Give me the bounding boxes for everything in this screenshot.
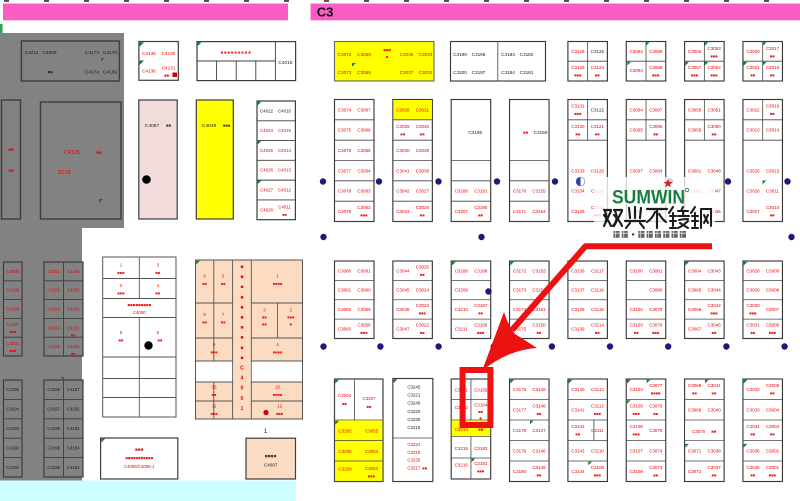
svg-text:C3208: C3208 (455, 268, 469, 273)
svg-text:■■: ■■ (712, 391, 717, 396)
svg-text:C3153: C3153 (532, 268, 546, 273)
svg-text:C3025: C3025 (416, 264, 430, 269)
svg-text:C3122: C3122 (591, 107, 605, 112)
svg-text:C3065: C3065 (688, 288, 702, 293)
svg-text:C3028: C3028 (746, 268, 760, 273)
svg-text:C3187: C3187 (474, 303, 488, 308)
svg-text:C4155: C4155 (47, 344, 60, 349)
svg-text:C3061: C3061 (357, 268, 371, 273)
svg-text:C3040: C3040 (707, 407, 721, 412)
svg-text:C4013: C4013 (278, 168, 291, 173)
svg-text:C3047: C3047 (396, 326, 410, 331)
svg-text:C3078: C3078 (649, 323, 663, 328)
svg-text:C3196: C3196 (472, 52, 486, 57)
svg-text:4: 4 (241, 376, 244, 382)
svg-text:C3081: C3081 (338, 288, 352, 293)
svg-text:C3080: C3080 (649, 288, 663, 293)
svg-text:C3036: C3036 (400, 52, 414, 57)
svg-text:C3029: C3029 (746, 288, 760, 293)
svg-text:■■■: ■■■ (710, 73, 718, 78)
svg-text:C4173: C4173 (85, 50, 99, 56)
svg-text:C3094: C3094 (630, 107, 644, 112)
svg-text:0: 0 (241, 386, 244, 392)
svg-text:■■: ■■ (537, 473, 542, 478)
svg-text:1: 1 (241, 406, 244, 412)
svg-text:■■■: ■■■ (477, 469, 485, 474)
svg-text:C4191: C4191 (6, 465, 19, 470)
svg-text:■■■: ■■■ (117, 270, 125, 275)
svg-text:C3066: C3066 (688, 307, 702, 312)
svg-text:C3217: C3217 (407, 465, 420, 470)
svg-text:C4198: C4198 (47, 426, 60, 431)
svg-text:■■: ■■ (712, 473, 717, 478)
svg-text:C4008: C4008 (42, 50, 56, 56)
svg-text:C3183: C3183 (501, 52, 515, 57)
svg-text:C3067: C3067 (688, 326, 702, 331)
svg-text:■■: ■■ (282, 213, 287, 217)
svg-text:C4154: C4154 (67, 445, 80, 450)
svg-text:C3177: C3177 (513, 407, 527, 412)
svg-text:C3134: C3134 (571, 189, 585, 194)
svg-text:C4200: C4200 (6, 269, 19, 274)
svg-text:C3039: C3039 (416, 148, 430, 153)
svg-text:C3061: C3061 (688, 168, 702, 173)
svg-text:C3182: C3182 (520, 52, 534, 57)
svg-text:C4193: C4193 (6, 426, 19, 431)
svg-text:C3084: C3084 (649, 168, 663, 173)
svg-text:C4154: C4154 (47, 325, 60, 330)
svg-text:■■: ■■ (711, 429, 717, 434)
svg-text:C3034: C3034 (746, 424, 760, 429)
svg-text:C3104: C3104 (630, 387, 644, 392)
svg-text:C3052: C3052 (707, 65, 721, 70)
svg-text:C3142: C3142 (571, 424, 585, 429)
svg-text:C3022: C3022 (746, 107, 760, 112)
svg-text:■■: ■■ (712, 330, 717, 335)
svg-text:C3038: C3038 (707, 448, 721, 453)
svg-text:C3042: C3042 (707, 303, 721, 308)
svg-text:C3235: C3235 (407, 458, 420, 463)
svg-text:■■■: ■■■ (419, 311, 427, 316)
svg-text:■■■■: ■■■■ (273, 281, 283, 286)
svg-text:10: 10 (275, 385, 280, 390)
svg-text:C3032: C3032 (419, 70, 433, 75)
svg-text:C3181: C3181 (474, 461, 488, 466)
svg-text:C3056: C3056 (688, 49, 702, 54)
svg-text:C4192: C4192 (6, 445, 19, 450)
svg-text:C3206: C3206 (338, 449, 352, 454)
svg-text:C3125: C3125 (591, 49, 605, 54)
svg-text:C3230: C3230 (407, 417, 420, 422)
svg-text:C3190: C3190 (474, 205, 488, 210)
svg-text:C3191: C3191 (474, 189, 488, 194)
svg-text:■■: ■■ (119, 338, 124, 343)
svg-text:C3180: C3180 (513, 469, 527, 474)
svg-text:15: 15 (212, 385, 217, 390)
svg-text:C3154: C3154 (532, 209, 546, 214)
svg-text:C3035: C3035 (746, 448, 760, 453)
svg-text:C4194: C4194 (6, 407, 19, 412)
svg-text:■■■: ■■■ (574, 73, 582, 78)
svg-text:C3095: C3095 (630, 128, 644, 133)
svg-text:■■: ■■ (420, 131, 425, 136)
svg-text:■■■■: ■■■■ (273, 350, 283, 355)
svg-text:C3147: C3147 (532, 428, 546, 433)
svg-text:■■: ■■ (166, 123, 172, 128)
svg-text:■■: ■■ (478, 409, 483, 414)
svg-text:■■: ■■ (96, 151, 102, 156)
svg-text:C3036: C3036 (746, 465, 760, 470)
svg-text:C3143: C3143 (571, 448, 585, 453)
svg-text:C3170: C3170 (513, 189, 527, 194)
svg-text:■■: ■■ (634, 330, 639, 335)
svg-text:C4195: C4195 (6, 387, 19, 392)
svg-text:C4087: C4087 (145, 123, 160, 129)
svg-text:C4198: C4198 (6, 307, 19, 312)
svg-text:■■: ■■ (653, 411, 658, 416)
svg-text:C3105: C3105 (630, 404, 644, 409)
svg-text:C3030: C3030 (416, 124, 430, 129)
svg-text:C3183: C3183 (474, 446, 488, 451)
svg-text:■: ■ (240, 295, 243, 301)
svg-text:■■■: ■■■ (135, 447, 144, 452)
svg-text:C3083: C3083 (338, 326, 352, 331)
svg-text:■: ■ (240, 285, 243, 291)
svg-text:C3100: C3100 (630, 268, 644, 273)
svg-text:C3027: C3027 (416, 189, 430, 194)
svg-text:■■■: ■■■ (769, 473, 777, 478)
svg-text:C3058: C3058 (688, 107, 702, 112)
svg-text:C4211: C4211 (25, 50, 39, 56)
svg-text:■■: ■■ (537, 330, 542, 335)
svg-text:■■: ■■ (221, 320, 226, 325)
svg-text:C3008: C3008 (766, 288, 780, 293)
svg-text:C3179: C3179 (513, 448, 527, 453)
svg-text:C3033: C3033 (419, 52, 433, 57)
svg-text:■■■: ■■■ (117, 291, 125, 296)
svg-text:C3249: C3249 (407, 401, 420, 406)
svg-text:■■■: ■■■ (9, 330, 17, 334)
svg-text:C4197: C4197 (6, 322, 19, 327)
svg-text:C3121: C3121 (591, 124, 605, 129)
svg-text:C3149: C3149 (532, 387, 546, 392)
svg-text:C3055: C3055 (365, 429, 379, 434)
svg-text:■■: ■■ (595, 330, 600, 335)
svg-text:C3038: C3038 (416, 168, 430, 173)
svg-text:C3131: C3131 (571, 103, 585, 108)
svg-text:11: 11 (212, 404, 217, 409)
svg-text:C3097: C3097 (630, 168, 644, 173)
svg-text:C3164: C3164 (474, 403, 488, 408)
svg-text:C3171: C3171 (513, 209, 527, 214)
svg-text:C4199: C4199 (47, 445, 60, 450)
svg-text:C3029: C3029 (396, 124, 410, 129)
svg-text:C3070: C3070 (692, 429, 706, 434)
svg-text:C3051: C3051 (707, 107, 721, 112)
svg-text:C3022: C3022 (416, 323, 430, 328)
svg-text:C3110: C3110 (591, 448, 604, 453)
svg-text:C3219: C3219 (407, 425, 420, 430)
svg-text:■■: ■■ (712, 131, 717, 136)
svg-text:C4196: C4196 (47, 387, 60, 392)
svg-text:C3003: C3003 (766, 424, 780, 429)
svg-text:C3050: C3050 (707, 124, 721, 129)
svg-text:C3148: C3148 (532, 404, 546, 409)
svg-text:C3057: C3057 (688, 65, 702, 70)
svg-text:C4011: C4011 (278, 204, 291, 209)
svg-text:C3159: C3159 (534, 130, 548, 135)
svg-text:■■: ■■ (400, 131, 405, 136)
svg-text:C3111: C3111 (591, 428, 604, 433)
svg-text:C3074: C3074 (649, 448, 663, 453)
svg-text:C3023: C3023 (746, 128, 760, 133)
svg-text:C3133: C3133 (571, 168, 585, 173)
svg-text:C3103: C3103 (630, 323, 644, 328)
svg-text:C3165: C3165 (474, 388, 488, 393)
svg-text:■■■: ■■■ (360, 213, 368, 218)
svg-text:C3106: C3106 (630, 424, 644, 429)
svg-text:C4158: C4158 (67, 269, 80, 274)
svg-text:C3064: C3064 (357, 168, 371, 173)
svg-text:C3054: C3054 (365, 449, 379, 454)
svg-text:■■■: ■■■ (276, 411, 284, 416)
svg-text:■: ■ (240, 275, 243, 281)
svg-text:C4130: C4130 (162, 51, 176, 56)
svg-text:C3019: C3019 (766, 103, 780, 108)
svg-text:C4007: C4007 (264, 463, 278, 468)
svg-text:C3058: C3058 (357, 323, 371, 328)
svg-text:C3210: C3210 (455, 307, 469, 312)
svg-text:C4125: C4125 (64, 150, 80, 156)
svg-text:C3027: C3027 (746, 209, 760, 214)
svg-text:■■■: ■■■ (574, 111, 582, 116)
svg-text:C3025: C3025 (746, 168, 760, 173)
svg-text:C4000: C4000 (133, 310, 146, 315)
svg-text:C4156: C4156 (67, 407, 80, 412)
svg-text:C3176: C3176 (513, 387, 527, 392)
svg-text:C3002: C3002 (766, 448, 780, 453)
svg-text:■: ■ (240, 355, 243, 361)
svg-text:C3200: C3200 (453, 70, 467, 75)
svg-text:■■: ■■ (155, 270, 160, 275)
svg-text:C3197: C3197 (472, 70, 486, 75)
svg-text:■■■: ■■■ (769, 330, 777, 335)
svg-text:C3221: C3221 (407, 393, 420, 398)
svg-text:C3102: C3102 (630, 307, 644, 312)
svg-text:C3064: C3064 (688, 268, 702, 273)
svg-text:■■■: ■■■ (383, 48, 391, 53)
svg-text:0: 0 (241, 396, 244, 402)
svg-text:C3117: C3117 (591, 268, 604, 273)
svg-text:C4027: C4027 (260, 188, 273, 193)
svg-text:C3144: C3144 (571, 469, 585, 474)
svg-text:C3045: C3045 (396, 288, 410, 293)
svg-text:C3220: C3220 (407, 409, 420, 414)
svg-text:C3115: C3115 (591, 307, 604, 312)
svg-text:■■■: ■■■ (652, 330, 660, 335)
svg-text:C3089: C3089 (649, 49, 663, 54)
svg-text:C4025: C4025 (260, 148, 273, 153)
svg-text:C3120: C3120 (591, 168, 605, 173)
svg-text:C3072: C3072 (338, 52, 352, 57)
svg-text:C4160: C4160 (67, 307, 80, 312)
svg-text:C3011: C3011 (766, 189, 779, 194)
svg-text:C3013: C3013 (766, 168, 780, 173)
svg-text:■■: ■■ (367, 404, 372, 409)
svg-text:C3155: C3155 (532, 189, 546, 194)
svg-text:C3199: C3199 (453, 52, 467, 57)
svg-text:■■: ■■ (770, 111, 775, 116)
svg-text:C3178: C3178 (513, 428, 527, 433)
svg-text:■■: ■■ (595, 73, 600, 78)
svg-text:C3208: C3208 (455, 189, 469, 194)
svg-text:C3044: C3044 (396, 268, 410, 273)
svg-text:C3024: C3024 (416, 288, 430, 293)
svg-text:C3043: C3043 (707, 268, 721, 273)
svg-text:C3215: C3215 (455, 446, 469, 451)
svg-text:■■■: ■■■ (368, 474, 376, 479)
svg-text:C3205: C3205 (338, 429, 352, 434)
svg-text:■■■: ■■■ (691, 73, 699, 78)
svg-text:C4022: C4022 (260, 108, 273, 113)
svg-text:C3020: C3020 (746, 49, 760, 54)
svg-text:C3107: C3107 (630, 448, 644, 453)
svg-text:C3150: C3150 (532, 323, 546, 328)
svg-text:C3042: C3042 (396, 189, 410, 194)
svg-text:C3046: C3046 (396, 307, 410, 312)
svg-text:C3053: C3053 (707, 46, 721, 51)
svg-text:C3207: C3207 (362, 396, 376, 401)
svg-text:■■■: ■■■ (360, 330, 368, 335)
svg-text:C3030: C3030 (746, 303, 760, 308)
svg-text:■■: ■■ (537, 411, 542, 416)
svg-text:■■: ■■ (770, 213, 775, 218)
svg-text:C3069: C3069 (688, 407, 702, 412)
svg-text:C4012: C4012 (278, 188, 291, 193)
svg-text:C3065: C3065 (357, 148, 371, 153)
svg-text:C3077: C3077 (649, 383, 663, 388)
svg-text:C4049: C4049 (202, 123, 217, 129)
svg-text:■■: ■■ (202, 320, 207, 325)
svg-text:C3074: C3074 (338, 107, 352, 112)
svg-text:C3026: C3026 (746, 189, 760, 194)
svg-text:C4015: C4015 (278, 128, 291, 133)
svg-text:C3073: C3073 (649, 465, 663, 470)
svg-text:C3209: C3209 (338, 467, 352, 472)
svg-text:■: ■ (240, 345, 243, 351)
svg-text:C4006/C4006-1: C4006/C4006-1 (124, 464, 155, 469)
svg-text:C3063: C3063 (357, 189, 371, 194)
svg-text:■■: ■■ (478, 212, 483, 217)
svg-text:■■: ■■ (420, 330, 425, 335)
svg-text:C3037: C3037 (707, 465, 721, 470)
svg-text:C4131: C4131 (162, 66, 176, 71)
svg-text:■■: ■■ (8, 147, 14, 152)
svg-text:C3037: C3037 (400, 70, 414, 75)
svg-text:C3075: C3075 (338, 128, 352, 133)
svg-text:■■: ■■ (692, 391, 697, 396)
svg-text:C3014: C3014 (766, 128, 780, 133)
svg-text:C3077: C3077 (338, 168, 352, 173)
svg-text:C3072: C3072 (688, 469, 702, 474)
svg-text:C4170: C4170 (103, 50, 117, 56)
svg-text:C3010: C3010 (766, 205, 780, 210)
svg-text:C3128: C3128 (571, 49, 585, 54)
svg-text:C3069: C3069 (357, 52, 371, 57)
svg-text:C3: C3 (317, 5, 334, 20)
svg-text:C3140: C3140 (571, 387, 585, 392)
svg-text:■■: ■■ (770, 432, 775, 437)
svg-text:C3062: C3062 (357, 205, 371, 210)
svg-text:C3129: C3129 (571, 65, 585, 70)
svg-text:C3218: C3218 (407, 450, 420, 455)
svg-text:C3071: C3071 (688, 448, 702, 453)
svg-text:C3041: C3041 (396, 168, 410, 173)
svg-text:C3112: C3112 (591, 404, 604, 409)
svg-text:C4190: C4190 (47, 465, 60, 470)
svg-text:■■: ■■ (212, 392, 217, 397)
svg-text:C3231: C3231 (407, 442, 420, 447)
svg-text:C3086: C3086 (649, 124, 663, 129)
svg-text:C3130: C3130 (571, 124, 585, 129)
svg-text:C3181: C3181 (520, 70, 534, 75)
svg-text:C3044: C3044 (707, 288, 721, 293)
svg-text:C3075: C3075 (649, 428, 663, 433)
svg-text:C3211: C3211 (455, 326, 468, 331)
svg-text:■■: ■■ (751, 432, 756, 437)
svg-text:C3067: C3067 (357, 107, 371, 112)
svg-text:C3006: C3006 (766, 323, 780, 328)
svg-text:■■■■: ■■■■ (651, 391, 661, 396)
svg-text:■■: ■■ (71, 333, 76, 337)
svg-text:10*18: 10*18 (57, 170, 70, 176)
svg-text:C3137: C3137 (571, 288, 585, 293)
svg-text:■■: ■■ (420, 272, 425, 277)
svg-text:C3207: C3207 (455, 209, 469, 214)
svg-text:C3031: C3031 (746, 323, 760, 328)
svg-text:■■: ■■ (770, 391, 775, 396)
svg-text:C3080: C3080 (338, 268, 352, 273)
svg-text:■■: ■■ (653, 131, 658, 136)
svg-text:C3033: C3033 (746, 407, 760, 412)
svg-text:■■■■: ■■■■ (273, 392, 283, 397)
svg-text:■■: ■■ (47, 70, 53, 75)
svg-text:C4136: C4136 (142, 69, 156, 74)
svg-text:C3007: C3007 (766, 307, 780, 312)
svg-text:C3135: C3135 (571, 209, 585, 214)
svg-text:■: ■ (240, 265, 243, 271)
svg-text:C3016: C3016 (766, 65, 780, 70)
svg-text:C4153: C4153 (67, 465, 80, 470)
svg-text:C4014: C4014 (278, 148, 291, 153)
svg-text:■■■: ■■■ (477, 330, 485, 335)
svg-text:■■: ■■ (420, 213, 425, 218)
svg-text:C3043: C3043 (396, 209, 410, 214)
svg-text:■■■■■■■■■: ■■■■■■■■■ (220, 50, 251, 55)
svg-text:■: ■ (240, 325, 243, 331)
svg-text:C3048: C3048 (707, 168, 721, 173)
svg-text:C: C (240, 366, 244, 372)
svg-text:■■: ■■ (8, 168, 14, 173)
svg-text:■■: ■■ (653, 473, 658, 478)
svg-text:C3073: C3073 (338, 70, 352, 75)
svg-text:■■■■: ■■■■ (265, 455, 277, 460)
svg-text:■: ■ (240, 315, 243, 321)
svg-text:■■■: ■■■ (287, 315, 295, 320)
svg-text:■■■: ■■■ (594, 473, 602, 478)
svg-text:C3141: C3141 (571, 407, 585, 412)
svg-text:C3082: C3082 (338, 307, 352, 312)
